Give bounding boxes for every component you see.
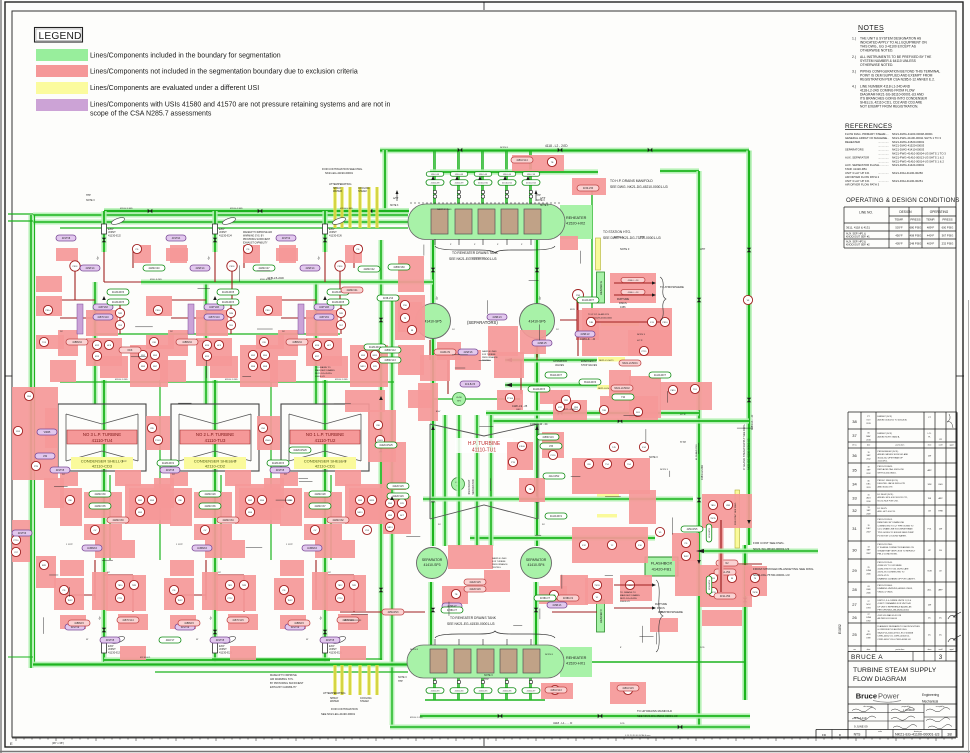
svg-text:41570-V15: 41570-V15 (232, 620, 244, 622)
svg-text:41580-V16: 41580-V16 (542, 437, 554, 439)
svg-text:41570-V170.: 41570-V170. (878, 575, 890, 577)
svg-text:NK21-.0-36110: NK21-.0-36110 (563, 409, 578, 411)
svg-text:41130-EJ6: 41130-EJ6 (329, 233, 342, 237)
svg-text:6" FLANGE CONNECTION ADDED ON: 6" FLANGE CONNECTION ADDED ON (878, 546, 915, 549)
svg-text:MAKEUP TO IMPROVE AIR: MAKEUP TO IMPROVE AIR (243, 231, 272, 234)
svg-text:26: 26 (852, 615, 857, 620)
svg-text:DISCS: DISCS (619, 302, 627, 305)
svg-text:NK21-L0-50C2: NK21-L0-50C2 (614, 388, 630, 390)
svg-text:RUPTURE: RUPTURE (617, 298, 629, 301)
svg-text:SEE DWG. NK21-DG-45210-00001: SEE DWG. NK21-DG-45210-00001-U3 (610, 185, 668, 189)
svg-text:NOTE 2: NOTE 2 (614, 236, 624, 239)
svg-text:SAMPLE LINES: SAMPLE LINES (492, 557, 507, 560)
svg-text:PERFORMANCE: PERFORMANCE (492, 563, 508, 566)
svg-text:41580-V7: 41580-V7 (540, 598, 551, 600)
svg-text:41S8-V6: 41S8-V6 (464, 352, 474, 354)
svg-text:41B9V15: 41B9V15 (74, 623, 84, 625)
svg-text:13: 13 (867, 507, 869, 509)
svg-text:41510-V4: 41510-V4 (455, 691, 465, 693)
svg-text:WARMING SYS. BY: WARMING SYS. BY (243, 235, 264, 238)
svg-text:41STV5: 41STV5 (166, 470, 175, 472)
svg-text:REMOVED 3/4" DRAIN LINE: REMOVED 3/4" DRAIN LINE (878, 521, 905, 524)
svg-text:Power: Power (878, 692, 900, 701)
svg-text:& ORIFICES PLS AS PER CHG: & ORIFICES PLS AS PER CHG (878, 628, 908, 631)
svg-text:V33: V33 (549, 446, 554, 448)
svg-text:TO H.P. DRAINS MANIFOLD: TO H.P. DRAINS MANIFOLD (610, 179, 653, 183)
svg-text:NO 2 L.P. TURBINE: NO 2 L.P. TURBINE (196, 432, 234, 437)
svg-text:503°F: 503°F (895, 225, 903, 229)
svg-text:41120-WV7: 41120-WV7 (582, 300, 595, 302)
svg-text:NK21-FDH-41100-00251: NK21-FDH-41100-00251 (892, 179, 923, 183)
svg-text:41STV2: 41STV2 (282, 238, 291, 240)
svg-text:24'D: 24'D (620, 723, 625, 725)
svg-text:FROM NITROGEN BLANKETING SE: FROM NITROGEN BLANKETING SEE DWG. (753, 567, 814, 571)
svg-text:Bruce: Bruce (856, 692, 877, 701)
svg-text:41120-WV7: 41120-WV7 (654, 375, 667, 377)
svg-text:NOTE 8: NOTE 8 (410, 649, 419, 651)
svg-text:41410-SP6: 41410-SP6 (529, 320, 546, 324)
svg-text:4156: 4156 (620, 306, 626, 309)
svg-text:UP UNIT 3 REFERENCE ADDED AS: UP UNIT 3 REFERENCE ADDED AS (878, 605, 912, 608)
svg-text:41580-V12: 41580-V12 (384, 350, 396, 352)
svg-text:41570-V14: 41570-V14 (122, 620, 134, 622)
svg-text:PER DCR 8103.: PER DCR 8103. (878, 519, 893, 521)
svg-text:PROVIDING SUFFICIENT: PROVIDING SUFFICIENT (243, 239, 271, 241)
svg-text:4150-V36: 4150-V36 (583, 188, 594, 190)
svg-text:ADDED VALVES 36110-V41 AND: ADDED VALVES 36110-V41 AND (878, 453, 909, 456)
svg-text:41SBV16: 41SBV16 (87, 548, 97, 550)
svg-text:4118-L1-24D: 4118-L1-24D (225, 379, 238, 381)
svg-text:1992: 1992 (866, 620, 870, 622)
svg-text:HHB: HHB (938, 511, 943, 513)
svg-text:4181-L2-24D: 4181-L2-24D (700, 465, 704, 480)
svg-text:date: date (867, 443, 870, 446)
svg-text:..............: .............. (878, 171, 889, 175)
svg-text:41B9V34: 41B9V34 (292, 342, 302, 344)
svg-text:19: 19 (867, 525, 869, 527)
svg-text:32: 32 (852, 508, 857, 513)
svg-text:41B-L3-6D: 41B-L3-6D (431, 174, 440, 176)
svg-text:41130-V9: 41130-V9 (440, 352, 451, 354)
svg-text:41510-V15: 41510-V15 (622, 688, 634, 690)
svg-text:1993: 1993 (866, 607, 870, 609)
svg-text:EXHAUST CAPABILITY: EXHAUST CAPABILITY (270, 686, 297, 689)
svg-text:41410-SP5: 41410-SP5 (425, 320, 442, 324)
svg-text:H.T.P.: H.T.P. (637, 340, 643, 342)
svg-text:Lines/Components not included: Lines/Components not included in the seg… (90, 69, 358, 76)
svg-text:NOTE 3: NOTE 3 (484, 674, 493, 677)
svg-text:AUX. SEPARATOR: AUX. SEPARATOR (845, 155, 869, 159)
svg-text:41180-V32: 41180-V32 (332, 520, 344, 522)
svg-text:31: 31 (852, 526, 857, 531)
svg-text:41180-WV2: 41180-WV2 (162, 463, 175, 465)
svg-text:FOR TURBINE: FOR TURBINE (492, 561, 506, 563)
svg-text:SEPARATORS: SEPARATORS (845, 148, 864, 152)
svg-text:TO STATION HTG.: TO STATION HTG. (603, 230, 631, 234)
svg-text:41S8-V4: 41S8-V4 (306, 268, 316, 270)
svg-text:NK21-FDH-41100-00250: NK21-FDH-41100-00250 (892, 171, 923, 175)
svg-text:L CUMAK: L CUMAK (903, 708, 915, 712)
svg-text:248 PSIG: 248 PSIG (910, 241, 922, 245)
svg-text:4118-L5-36D: 4118-L5-36D (340, 208, 353, 210)
svg-text:41130-WV3: 41130-WV3 (222, 302, 235, 304)
svg-text:STEAM: STEAM (358, 190, 367, 193)
svg-text:440°F: 440°F (927, 233, 935, 237)
svg-text:4118-V7: 4118-V7 (166, 640, 175, 642)
svg-text:4150-WV5: 4150-WV5 (687, 529, 699, 531)
svg-text:UNITS 1,3 & 4 WERE UNITS 1,2,3: UNITS 1,3 & 4 WERE UNITS 1,2,3 & (878, 600, 912, 602)
svg-text:3611, 4118 & 4131: 3611, 4118 & 4131 (846, 225, 870, 229)
svg-text:41180-V57 TO V42 WERE: 41180-V57 TO V42 WERE (878, 565, 903, 567)
svg-text:PER CHN NK21-DM-08200-00101: PER CHN NK21-DM-08200-00101 (878, 610, 910, 612)
svg-text:41180-V41: 41180-V41 (346, 290, 358, 292)
svg-text:41STV9: 41STV9 (291, 627, 300, 629)
svg-text:EXHAUST CAPABILITY: EXHAUST CAPABILITY (243, 242, 268, 245)
svg-text:PTB: PTB (34, 466, 39, 468)
svg-text:400°F: 400°F (927, 241, 935, 245)
svg-text:41STV5: 41STV5 (56, 470, 65, 472)
svg-text:41SB-V4: 41SB-V4 (492, 317, 502, 319)
svg-text:unoff: unoff (939, 649, 943, 651)
svg-text:EC 36442 (DCX):: EC 36442 (DCX): (878, 494, 894, 496)
svg-text:41 GLAND SYS: 41 GLAND SYS (695, 444, 698, 460)
svg-text:ref no.: ref no. (852, 443, 857, 446)
svg-text:28: 28 (852, 587, 857, 592)
svg-text:4156-WV3: 4156-WV3 (388, 612, 400, 614)
svg-text:41130-EJ2: 41130-EJ2 (108, 233, 121, 237)
svg-text:4118-L4-36D: 4118-L4-36D (230, 208, 243, 210)
svg-text:ARP: ARP (927, 469, 932, 472)
svg-text:41S8-V4: 41S8-V4 (196, 268, 206, 270)
svg-text:2011: 2011 (866, 487, 870, 489)
svg-text:Lines/Components with USIs 415: Lines/Components with USIs 41580 and 415… (90, 102, 391, 109)
svg-text:REHEATER: REHEATER (845, 140, 860, 144)
svg-text:PERFORMANCE: PERFORMANCE (482, 356, 498, 359)
svg-text:38: 38 (947, 732, 952, 737)
svg-text:4158: 4158 (658, 611, 664, 614)
svg-text:G-6.4-119: G-6.4-119 (854, 716, 867, 720)
svg-text:4118 - L2 - 24'D: 4118 - L2 - 24'D (545, 144, 568, 148)
svg-text:SAMPLE LINES: SAMPLE LINES (437, 208, 452, 211)
svg-text:27: 27 (852, 602, 857, 607)
svg-text:41510-V7: 41510-V7 (527, 691, 537, 693)
svg-text:41520-HX1: 41520-HX1 (566, 662, 585, 666)
svg-text:..............: .............. (878, 179, 889, 183)
svg-text:SEE NK21-DG-45210-00001-U3: SEE NK21-DG-45210-00001-U3 (637, 714, 678, 718)
svg-text:NOTE 3: NOTE 3 (390, 205, 399, 207)
svg-text:KNOCKOUT SEP. #2: KNOCKOUT SEP. #2 (846, 244, 870, 247)
svg-text:E0852: E0852 (838, 624, 842, 634)
svg-text:LINE NO.: LINE NO. (859, 211, 873, 215)
svg-text:4112-WV2: 4112-WV2 (549, 476, 560, 478)
svg-text:CONNECTED TO 12" PIPE GOING TO: CONNECTED TO 12" PIPE GOING TO (878, 525, 914, 527)
svg-text:4118-L1-24D: 4118-L1-24D (410, 717, 423, 719)
svg-text:NK21-L3-50C1: NK21-L3-50C1 (622, 363, 638, 365)
svg-text:41STV9: 41STV9 (181, 627, 190, 629)
svg-text:41180-V29: 41180-V29 (204, 494, 216, 496)
svg-text:4106-L...-24: 4106-L...-24 (628, 292, 640, 294)
svg-text:1 1/2'P: 1 1/2'P (230, 461, 237, 463)
svg-text:0 10 20 30: 0 10 20 30 40 SCALE:mm (625, 734, 651, 737)
svg-text:41B-L5-24D: 41B-L5-24D (150, 279, 162, 281)
svg-text:EMERGENCY: EMERGENCY (581, 360, 597, 363)
svg-text:NOTE 3: NOTE 3 (86, 199, 95, 202)
svg-text:34: 34 (852, 481, 857, 486)
svg-text:41510-V12: 41510-V12 (526, 183, 537, 185)
svg-text:41STV18: 41STV18 (98, 307, 108, 309)
svg-text:DRAWING CLEANED UP FOR CLARITY: DRAWING CLEANED UP FOR CLARITY. (878, 577, 916, 580)
svg-text:41510-V13: 41510-V13 (550, 690, 562, 692)
svg-text:TEMP.: TEMP. (895, 218, 904, 222)
svg-text:NC3 & NC9 FOR CH2.: NC3 & NC9 FOR CH2. (878, 500, 899, 502)
svg-text:41B-L7-6D: 41B-L7-6D (527, 174, 536, 176)
svg-text:41S-B-V6: 41S-B-V6 (465, 384, 476, 386)
svg-text:41180-V30: 41180-V30 (94, 494, 106, 496)
svg-text:367 PSIG: 367 PSIG (942, 233, 954, 237)
svg-text:PT100: PT100 (507, 398, 514, 400)
svg-text:REGISTRATION PER CSA N285.0: REGISTRATION PER CSA N285.0-12 ANNEX E.2… (860, 78, 935, 82)
svg-text:TEMP.: TEMP. (926, 218, 935, 222)
svg-text:42110-CD3: 42110-CD3 (92, 464, 113, 469)
svg-text:41STV5: 41STV5 (276, 470, 285, 472)
svg-text:41110-TU3: 41110-TU3 (205, 438, 226, 443)
svg-text:APR: APR (867, 633, 872, 636)
svg-text:NOTE 8: NOTE 8 (500, 147, 509, 149)
svg-text:drawing no.: drawing no. (914, 731, 923, 733)
svg-text:41520-HX2: 41520-HX2 (566, 222, 585, 226)
svg-text:36110-WV6: 36110-WV6 (584, 382, 597, 384)
svg-text:date: date (867, 648, 871, 651)
svg-text:24'D: 24'D (700, 647, 705, 649)
svg-text:41S8-V4: 41S8-V4 (86, 268, 96, 270)
svg-text:41B-L6-24D: 41B-L6-24D (260, 279, 272, 281)
svg-text:H.T.R: H.T.R (680, 414, 686, 416)
svg-text:KNOCKOUT SEP. #1: KNOCKOUT SEP. #1 (846, 236, 870, 239)
svg-text:NS13: NS13 (360, 366, 366, 368)
svg-text:E: E (10, 741, 13, 746)
svg-text:ADDED: MC4 & NC10 FOR CY1,: ADDED: MC4 & NC10 FOR CY1, (878, 496, 909, 499)
svg-text:41130-EJ1: 41130-EJ1 (108, 650, 121, 654)
svg-text:OPERATING & DESIGN CONDITIO: OPERATING & DESIGN CONDITIONS (846, 197, 960, 204)
svg-text:4150-WV5: 4150-WV5 (709, 527, 711, 538)
svg-text:OTHERWISE NOTED.: OTHERWISE NOTED. (860, 49, 893, 53)
svg-text:4112-WV1.: 4112-WV1. (878, 461, 889, 463)
svg-text:rev: rev (853, 649, 856, 651)
svg-text:GA20-F14-41420-0Y001, ECO 0000: GA20-F14-41420-0Y001, ECO 00000B (878, 631, 914, 634)
svg-text:41STV1B: 41STV1B (209, 307, 219, 309)
svg-text:DW: DW (928, 456, 931, 458)
svg-text:TP05 GOING TO BOILER FEED PUMP: TP05 GOING TO BOILER FEED PUMP (878, 532, 915, 534)
svg-text:06: 06 (867, 481, 869, 483)
svg-text:4118-L9-...-D: 4118-L9-...-D (580, 337, 595, 341)
svg-text:JUNE: JUNE (866, 617, 872, 619)
svg-text:4.): 4.) (852, 84, 856, 88)
svg-text:13: 13 (867, 547, 869, 549)
svg-text:1 1/2'P: 1 1/2'P (340, 461, 347, 463)
svg-text:Mechanical: Mechanical (922, 700, 938, 704)
svg-text:HTP: HTP (86, 194, 91, 197)
svg-text:41SBV16: 41SBV16 (197, 548, 207, 550)
svg-text:NK21-DG-41428-: NK21-DG-41428- (620, 598, 637, 600)
svg-text:LEGEND: LEGEND (39, 31, 82, 42)
svg-text:STEAM: STEAM (360, 700, 369, 703)
svg-text:CD1. DRAIN LINE IS DOWNSTREAM: CD1. DRAIN LINE IS DOWNSTREAM (878, 528, 913, 531)
svg-text:NO 3 L.P. TURBINE: NO 3 L.P. TURBINE (83, 432, 121, 437)
svg-text:SEE NK21-EG-41530-00001-U3: SEE NK21-EG-41530-00001-U3 (449, 257, 497, 261)
svg-text:BRUCE A: BRUCE A (851, 654, 883, 661)
svg-text:3.): 3.) (852, 70, 856, 74)
svg-text:F1106: F1106 (519, 446, 525, 448)
svg-text:particulars: particulars (896, 443, 905, 446)
svg-text:HTP: HTP (700, 247, 705, 251)
svg-text:PER DCR 9146.: PER DCR 9146. (878, 562, 893, 564)
svg-text:STOP VALVES: STOP VALVES (581, 364, 597, 367)
svg-text:KHS: KHS (938, 484, 943, 486)
svg-text:4142-V30 WAS 4142-V28: 4142-V30 WAS 4142-V28 (878, 614, 902, 617)
svg-text:TO ATMOSPHERE: TO ATMOSPHERE (660, 285, 684, 289)
svg-text:™: ™ (890, 701, 892, 704)
svg-text:36110-V42 UPSTREAM OF: 36110-V42 UPSTREAM OF (878, 456, 904, 459)
svg-text:MAY: MAY (866, 435, 871, 438)
svg-text:PS18: PS18 (73, 266, 78, 268)
svg-text:41420-V26: 41420-V26 (392, 496, 404, 498)
svg-text:NE13: NE13 (387, 527, 393, 529)
svg-text:4106-L...-24: 4106-L...-24 (628, 280, 640, 282)
svg-text:Lines/Components included in t: Lines/Components included in the boundar… (90, 53, 281, 60)
svg-text:DRAWING UNITIZED, ADDED V9003,: DRAWING UNITIZED, ADDED V9003, (878, 587, 913, 590)
svg-text:2.): 2.) (852, 55, 856, 59)
svg-text:232 PSIG: 232 PSIG (942, 241, 954, 245)
svg-text:41420-WV26: 41420-WV26 (293, 450, 307, 452)
svg-text:NOTES: NOTES (858, 25, 884, 32)
svg-text:FLOW DIAGRAM: FLOW DIAGRAM (853, 676, 907, 683)
svg-text:41180-V28: 41180-V28 (314, 494, 326, 496)
svg-text:41420-WV25: 41420-WV25 (379, 445, 393, 447)
svg-text:4118 - L10 - 44: 4118 - L10 - 44 (530, 422, 548, 426)
svg-text:41120-WV3: 41120-WV3 (533, 389, 546, 391)
svg-text:TURBINE STEAM SUPPLY: TURBINE STEAM SUPPLY (853, 667, 937, 674)
svg-text:scope of the CSA N285.7 assess: scope of the CSA N285.7 assessments (90, 111, 212, 118)
svg-text:489°F: 489°F (927, 225, 935, 229)
svg-text:FOR CONT SEE DWG.: FOR CONT SEE DWG. (753, 541, 785, 545)
svg-text:FOR TURBINE: FOR TURBINE (482, 354, 496, 356)
svg-text:ADDED 4130-EJ1 TO 4130-EJ6.: ADDED 4130-EJ1 TO 4130-EJ6. (878, 419, 908, 422)
svg-text:DEC: DEC (867, 484, 872, 486)
svg-text:HTP: HTP (484, 678, 489, 681)
svg-text:ADD: HC7 & HC13.: ADD: HC7 & HC13. (878, 510, 896, 513)
svg-text:WATER: WATER (330, 700, 339, 703)
svg-text:OTHERWISE NOTED.: OTHERWISE NOTED. (860, 63, 893, 67)
svg-text:41410-SP4: 41410-SP4 (528, 563, 545, 567)
svg-text:41120-WV1: 41120-WV1 (550, 516, 563, 518)
svg-text:41STV5: 41STV5 (326, 640, 335, 642)
svg-text:ATTEMPERATING: ATTEMPERATING (323, 691, 345, 695)
svg-text:41B9V15: 41B9V15 (184, 623, 194, 625)
svg-text:DESIGN: DESIGN (899, 210, 912, 214)
svg-text:(36" x 36"): (36" x 36") (52, 741, 64, 745)
svg-text:TO HP DRAINS MANIFOLD: TO HP DRAINS MANIFOLD (637, 709, 672, 713)
svg-text:41130-WV8: 41130-WV8 (332, 302, 345, 304)
svg-text:DW: DW (939, 529, 942, 531)
svg-text:TO REHEATER DRAINS TANK: TO REHEATER DRAINS TANK (450, 616, 497, 620)
svg-text:w/TP: w/TP (393, 198, 399, 200)
svg-text:FOR CONTINUATION: FOR CONTINUATION (331, 707, 358, 711)
svg-text:E089607 (DCX): E089607 (DCX) (878, 433, 893, 435)
svg-text:ARP: ARP (938, 497, 943, 500)
svg-text:41B9V15: 41B9V15 (294, 623, 304, 625)
svg-text:GOVERNOR: GOVERNOR (553, 360, 567, 363)
svg-text:19: 19 (867, 631, 869, 633)
svg-text:REHEATER: REHEATER (566, 656, 587, 660)
svg-text:ARP: ARP (938, 589, 943, 592)
svg-text:450°F: 450°F (895, 233, 903, 237)
svg-text:41510-V9: 41510-V9 (455, 183, 465, 185)
svg-text:CW91-40162 U1, CW91-40164 U2,: CW91-40162 U1, CW91-40164 U2, (878, 636, 911, 638)
svg-text:41180-V34: 41180-V34 (222, 520, 234, 522)
svg-text:SEPARATOR: SEPARATOR (422, 558, 443, 562)
svg-text:GSV: GSV (516, 409, 521, 411)
svg-text:41510-V5: 41510-V5 (479, 691, 489, 693)
svg-text:AIR DRYER FLOW PATH 3: AIR DRYER FLOW PATH 3 (845, 183, 880, 187)
svg-text:1.): 1.) (852, 37, 856, 41)
svg-text:FOR CONTINUATION SEE DWG.: FOR CONTINUATION SEE DWG. (322, 167, 363, 171)
svg-text:V32: V32 (43, 456, 48, 458)
svg-text:HTP: HTP (640, 237, 645, 239)
svg-text:41SB-V2: 41SB-V2 (580, 334, 590, 336)
svg-text:600 PSIG: 600 PSIG (942, 225, 954, 229)
svg-text:E089667 (DCX): E089667 (DCX) (878, 416, 893, 418)
svg-text:31: 31 (867, 495, 869, 497)
svg-text:41580-V2: 41580-V2 (563, 598, 574, 600)
svg-text:41180-V37: 41180-V37 (314, 506, 326, 508)
svg-text:408 PSIG: 408 PSIG (910, 233, 922, 237)
svg-text:ATTEMPERATING: ATTEMPERATING (329, 182, 351, 186)
svg-text:41410: 41410 (456, 397, 462, 399)
svg-text:RUPTURE: RUPTURE (655, 603, 667, 606)
svg-text:41180-V35: 41180-V35 (94, 506, 106, 508)
svg-text:FOR CONT SEE DWG.: FOR CONT SEE DWG. (735, 502, 737, 525)
svg-text:41110-TU2: 41110-TU2 (315, 438, 336, 443)
svg-text:2009: 2009 (866, 513, 870, 515)
svg-text:NK21-SG-36110-00001-U3: NK21-SG-36110-00001-U3 (753, 547, 789, 551)
svg-text:41STV5: 41STV5 (106, 640, 115, 642)
svg-text:CW91-40167 U3 & CW91-40168 U4: CW91-40167 U3 & CW91-40168 U4 (878, 639, 912, 641)
svg-text:27: 27 (867, 614, 869, 616)
svg-text:41130-EJ4: 41130-EJ4 (219, 233, 232, 237)
svg-text:4150-WV6: 4150-WV6 (709, 579, 711, 590)
svg-text:4158-V16: 4158-V16 (383, 298, 394, 300)
svg-text:ESV: ESV (436, 411, 441, 413)
svg-text:TESTING: TESTING (492, 567, 501, 569)
svg-text:405°F: 405°F (895, 241, 903, 245)
svg-text:41STV19: 41STV19 (319, 317, 329, 319)
svg-text:30: 30 (852, 547, 857, 552)
svg-text:2006: 2006 (866, 592, 870, 594)
svg-text:41180-WV3: 41180-WV3 (272, 463, 285, 465)
svg-text:00004-U3: 00004-U3 (620, 601, 630, 603)
svg-text:NOTE 3: NOTE 3 (637, 334, 646, 336)
svg-text:41180-V36: 41180-V36 (204, 506, 216, 508)
svg-text:appd: appd (950, 649, 954, 651)
svg-text:03: 03 (867, 586, 869, 588)
svg-text:BY PROVIDING SUFFICIENT: BY PROVIDING SUFFICIENT (270, 682, 304, 685)
svg-text:41STV5: 41STV5 (216, 640, 225, 642)
svg-text:4118-L1-24D: 4118-L1-24D (335, 379, 348, 381)
svg-text:STEAM TRAP GRIP LEGS TO REFLEC: STEAM TRAP GRIP LEGS TO REFLECT (878, 549, 917, 552)
svg-text:9 JUNE 09: 9 JUNE 09 (854, 725, 868, 729)
svg-text:KNOCKOUT: KNOCKOUT (467, 479, 471, 494)
svg-text:MAIN SEP. DRAINS: MAIN SEP. DRAINS (620, 594, 640, 597)
